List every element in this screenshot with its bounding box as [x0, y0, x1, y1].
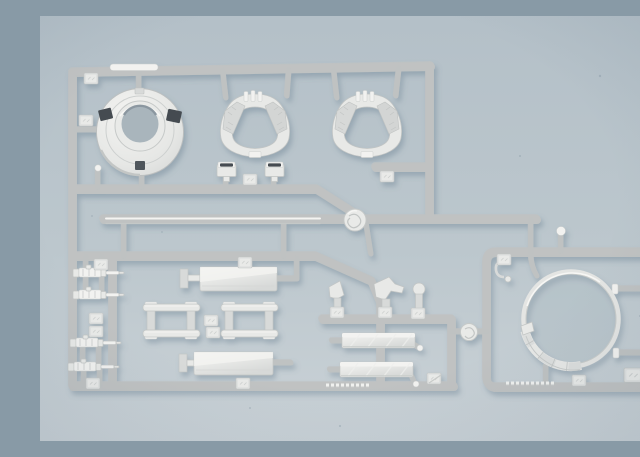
sprue-photo: Close-up photograph of a light grey inje…	[40, 16, 640, 441]
sprue-photo-canvas: Close-up photograph of a light grey inje…	[40, 16, 640, 441]
photo-vignette	[40, 16, 640, 441]
